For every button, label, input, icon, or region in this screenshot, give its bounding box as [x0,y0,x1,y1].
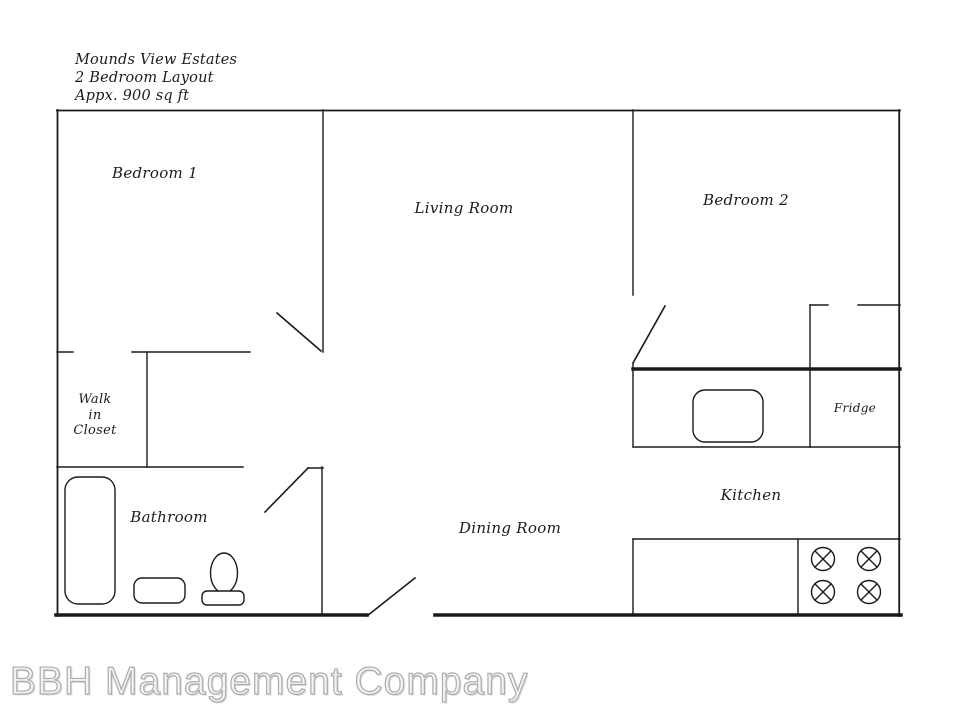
bathroom-sink [134,578,185,603]
exterior-walls [56,110,901,616]
bathtub [65,477,115,604]
floorplan-drawing [0,0,960,720]
floorplan-page: Mounds View Estates 2 Bedroom Layout App… [0,0,960,720]
door-swings [265,306,665,616]
room-label-dining-room: Dining Room [459,519,561,537]
toilet-bowl [211,553,238,593]
door-swing-entry [367,578,415,616]
plan-title-line2: 2 Bedroom Layout [75,69,237,87]
appliance-label-fridge: Fridge [834,401,876,415]
room-label-kitchen: Kitchen [721,486,782,504]
room-label-bathroom: Bathroom [130,508,208,526]
plan-title-line3: Appx. 900 sq ft [75,87,237,105]
door-swing-bedroom2 [633,306,665,363]
closet-label-line2: in [73,407,116,423]
stove-burners [812,548,881,604]
burner-icon [812,581,835,604]
watermark: BBH Management Company [10,660,528,704]
burner-icon [858,548,881,571]
closet-label-line3: Closet [73,423,116,439]
closet-label-line1: Walk [73,392,116,408]
plan-title-line1: Mounds View Estates [75,51,237,69]
burner-icon [858,581,881,604]
door-swing-bedroom1 [277,313,321,351]
plan-title: Mounds View Estates 2 Bedroom Layout App… [75,51,237,105]
room-label-living-room: Living Room [415,199,514,217]
toilet-tank [202,591,244,605]
room-label-bedroom-2: Bedroom 2 [703,191,789,209]
door-swing-bathroom [265,468,308,512]
room-label-bedroom-1: Bedroom 1 [112,164,198,182]
interior-walls [57,110,900,615]
room-label-walk-in-closet: Walk in Closet [73,392,116,439]
burner-icon [812,548,835,571]
kitchen-sink [693,390,763,442]
